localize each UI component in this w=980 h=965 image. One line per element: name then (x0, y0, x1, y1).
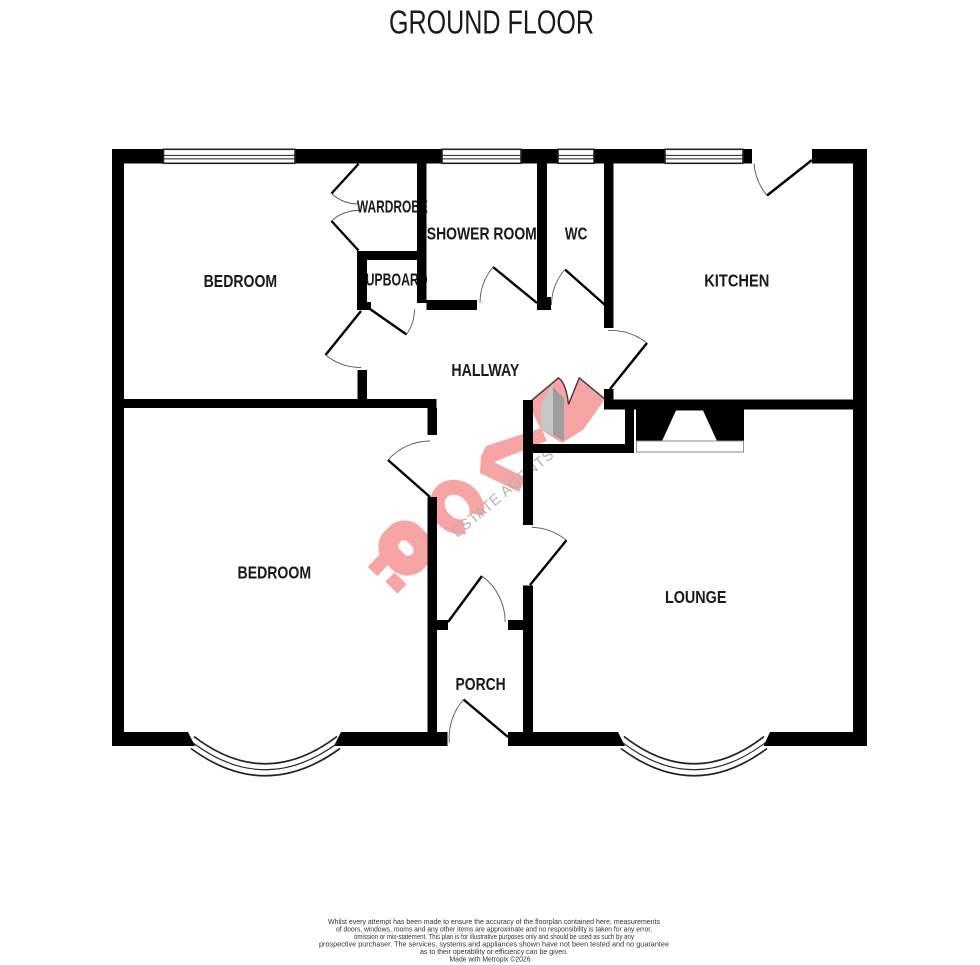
svg-text:SHOWER ROOM: SHOWER ROOM (427, 224, 537, 244)
svg-text:HALLWAY: HALLWAY (451, 360, 519, 380)
svg-text:KITCHEN: KITCHEN (704, 271, 769, 291)
svg-text:LOUNGE: LOUNGE (665, 587, 727, 607)
svg-text:Made with Metropix ©2026: Made with Metropix ©2026 (450, 954, 531, 963)
svg-text:BEDROOM: BEDROOM (238, 563, 312, 583)
svg-text:BEDROOM: BEDROOM (204, 271, 278, 291)
svg-text:WC: WC (565, 224, 588, 244)
svg-text:PORCH: PORCH (456, 674, 506, 694)
svg-text:GROUND FLOOR: GROUND FLOOR (389, 4, 594, 41)
